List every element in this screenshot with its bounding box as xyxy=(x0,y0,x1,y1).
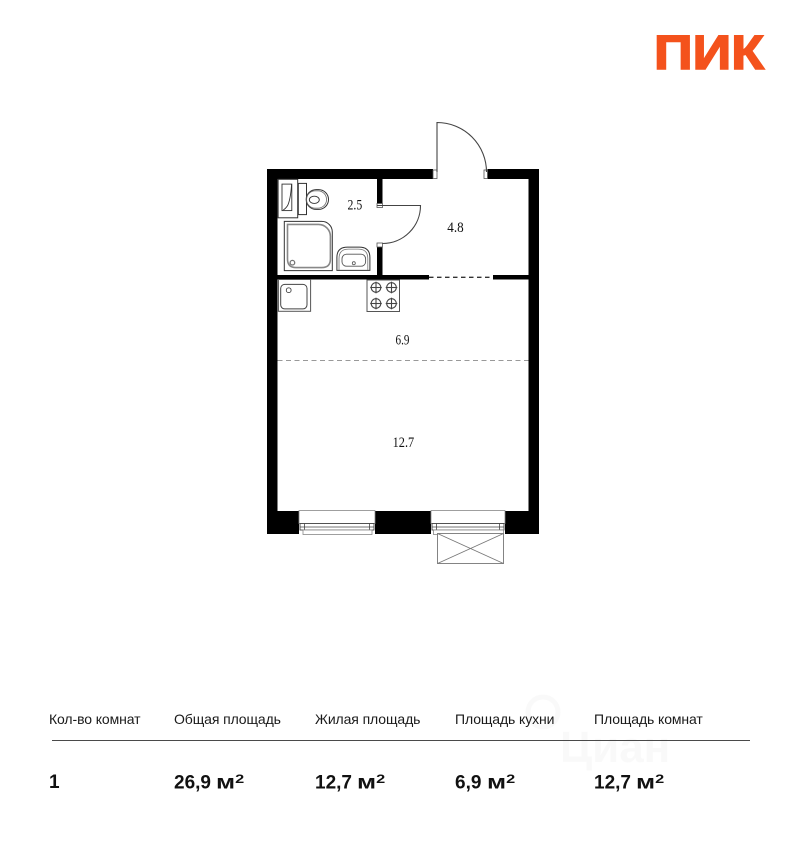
svg-text:ПИК: ПИК xyxy=(654,27,765,80)
svg-text:4.8: 4.8 xyxy=(447,220,463,236)
svg-text:6.9: 6.9 xyxy=(396,333,410,349)
svg-text:12.7: 12.7 xyxy=(393,435,415,451)
svg-text:Циан: Циан xyxy=(560,723,670,772)
svg-text:2.5: 2.5 xyxy=(348,198,363,214)
